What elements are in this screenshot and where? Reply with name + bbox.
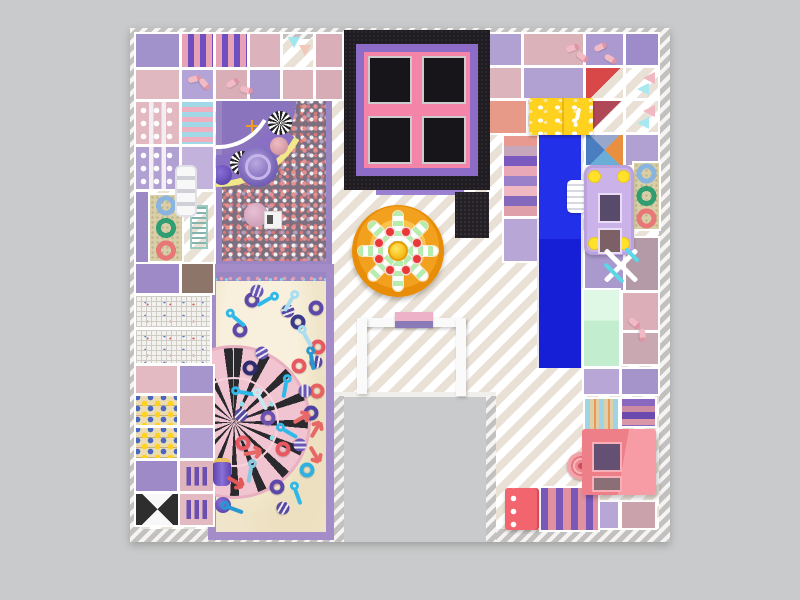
mat-tile-rollerv2 xyxy=(585,399,618,431)
sand-toy-ring xyxy=(243,361,258,376)
flower-seat xyxy=(375,239,383,247)
bus-wheel xyxy=(617,170,630,183)
sand-toy-ring xyxy=(261,411,276,426)
sand-toy-ring xyxy=(292,359,307,374)
mushroom-dome xyxy=(238,147,278,187)
cheese-box xyxy=(529,98,593,135)
mint-panel xyxy=(584,290,619,366)
mat-tile-solid xyxy=(136,192,148,262)
mat-tile-solid xyxy=(584,369,619,394)
mat-tile-solid xyxy=(504,219,537,261)
mat-tile-pennant xyxy=(283,34,313,67)
playhouse-window xyxy=(592,442,622,472)
sand-toy-ring xyxy=(236,436,251,451)
sparkle-decor xyxy=(246,125,258,127)
mat-tile-slats xyxy=(180,461,213,491)
entry-mat xyxy=(455,192,489,238)
gate-sign xyxy=(395,312,433,328)
playhouse xyxy=(582,429,656,495)
mat-tile-solid xyxy=(250,34,280,67)
mat-tile-slats xyxy=(180,494,213,525)
mat-tile-steps xyxy=(622,399,655,426)
mat-tile-solid xyxy=(524,68,583,98)
bead-rail xyxy=(216,272,326,281)
post-cylinder xyxy=(213,458,231,486)
mat-tile-xcross xyxy=(136,494,179,525)
mat-tile-capsules xyxy=(136,396,177,425)
flower-seat xyxy=(375,255,383,263)
mat-tile-solid xyxy=(622,502,655,528)
mat-tile-solid xyxy=(622,369,658,394)
floor-notch xyxy=(344,396,486,542)
mat-tile-rings xyxy=(634,163,659,229)
mat-tile-poles xyxy=(136,147,179,189)
pinwheel-decor xyxy=(598,242,644,288)
mat-tile-poles xyxy=(136,102,179,144)
mat-tile-mosaic xyxy=(586,135,623,165)
soft-ball xyxy=(270,137,288,155)
notch-left-wall xyxy=(334,396,344,542)
mat-tile-solid xyxy=(316,34,342,67)
sand-toy-ring xyxy=(310,384,325,399)
trampoline-bed xyxy=(422,56,466,104)
mat-tile-solid xyxy=(180,396,213,425)
sand-toy-ring xyxy=(276,442,291,457)
ball-pit xyxy=(216,95,332,267)
mat-tile-pennant2 xyxy=(626,101,658,132)
slide-stairs xyxy=(504,136,537,216)
soft-bench xyxy=(505,488,539,530)
flower-spinner xyxy=(352,205,444,297)
mat-tile-mesh xyxy=(136,296,210,327)
bus-wheel xyxy=(588,170,601,183)
mat-tile-mesh xyxy=(136,330,210,363)
sand-toy-ball xyxy=(299,385,312,398)
mat-tile-solid xyxy=(490,68,521,98)
mat-tile-solid xyxy=(626,135,658,165)
mat-tile-solid xyxy=(490,34,521,65)
mat-tile-solid xyxy=(136,366,177,393)
mat-tile-solid xyxy=(626,34,658,65)
capsule-toy xyxy=(639,328,646,341)
mat-tile-solid xyxy=(136,264,179,293)
mat-tile-rollerv xyxy=(216,34,247,67)
mat-tile-pennant2 xyxy=(626,68,658,98)
flower-seat xyxy=(402,228,410,236)
mat-tile-solid xyxy=(136,70,179,99)
striped-fan-decor xyxy=(268,111,292,135)
trampoline-bed xyxy=(368,56,412,104)
trampoline-bed xyxy=(368,116,412,164)
mat-tile-solid xyxy=(316,70,342,99)
notch-right-wall xyxy=(486,396,496,542)
bus-window xyxy=(598,193,622,223)
play-cube xyxy=(264,211,282,229)
gate-right-post xyxy=(456,318,466,396)
trampoline-bed xyxy=(422,116,466,164)
mat-tile-solid xyxy=(136,461,177,491)
mat-tile-rollerv xyxy=(182,34,213,67)
mat-tile-solid xyxy=(283,70,313,99)
straight-slide xyxy=(537,133,583,368)
gate-left-post xyxy=(357,318,367,394)
trampoline-edge-strip xyxy=(376,190,464,195)
flower-seat xyxy=(413,255,421,263)
trampoline-park xyxy=(344,30,490,190)
flower-hub xyxy=(388,241,408,261)
sand-toy-ring xyxy=(300,463,315,478)
mat-tile-solid xyxy=(586,34,623,65)
flower-seat xyxy=(402,266,410,274)
climb-ladder xyxy=(175,165,197,217)
mat-tile-solid xyxy=(136,34,179,67)
mat-tile-rollerh xyxy=(182,102,213,144)
flower-seat xyxy=(386,228,394,236)
mat-tile-solid xyxy=(180,428,213,458)
mat-tile-solid xyxy=(182,264,213,293)
playhouse-window xyxy=(592,476,622,492)
mat-tile-tri3d xyxy=(586,68,623,98)
sand-toy-ball xyxy=(294,439,307,452)
mat-tile-solid xyxy=(490,101,526,133)
mat-tile-solid xyxy=(180,366,213,393)
playground-render xyxy=(0,0,800,600)
sand-toy-ring xyxy=(309,301,324,316)
mat-tile-capsules xyxy=(136,428,177,458)
sand-toy-ring xyxy=(270,480,285,495)
mat-tile-solid xyxy=(250,70,280,99)
